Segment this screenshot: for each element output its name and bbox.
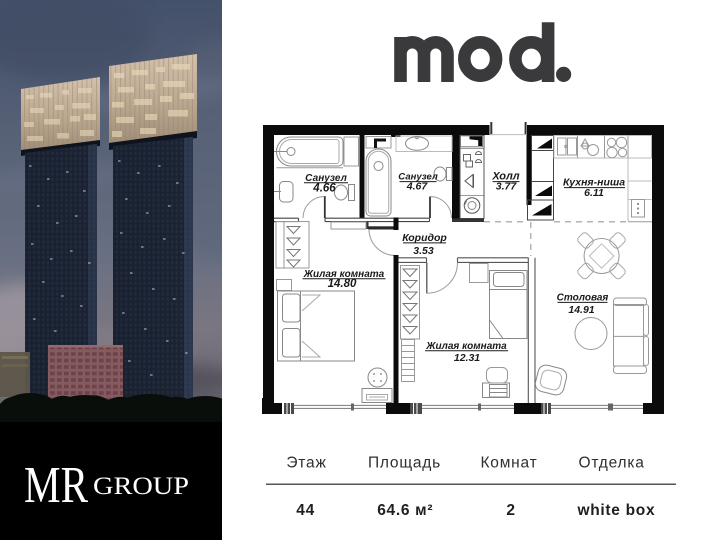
svg-text:white box: white box [577,502,656,519]
svg-text:Жилая комната: Жилая комната [425,341,507,352]
svg-text:3.77: 3.77 [496,181,518,193]
svg-text:Этаж: Этаж [286,454,326,471]
svg-text:Площадь: Площадь [368,454,441,471]
svg-text:64.6 м²: 64.6 м² [377,502,433,519]
svg-text:14.91: 14.91 [568,304,594,316]
svg-text:Отделка: Отделка [579,454,645,471]
svg-text:12.31: 12.31 [454,352,480,364]
svg-text:3.53: 3.53 [413,245,434,257]
svg-text:4.67: 4.67 [406,181,429,193]
svg-text:4.66: 4.66 [312,182,336,194]
svg-text:MR: MR [24,457,88,514]
svg-text:GROUP: GROUP [93,473,189,500]
svg-text:Столовая: Столовая [557,293,609,304]
svg-text:2: 2 [506,502,515,519]
svg-text:6.11: 6.11 [584,187,604,199]
svg-text:Комнат: Комнат [480,454,537,471]
svg-text:44: 44 [296,502,315,519]
svg-text:Коридор: Коридор [402,232,447,244]
svg-text:14.80: 14.80 [328,278,357,290]
